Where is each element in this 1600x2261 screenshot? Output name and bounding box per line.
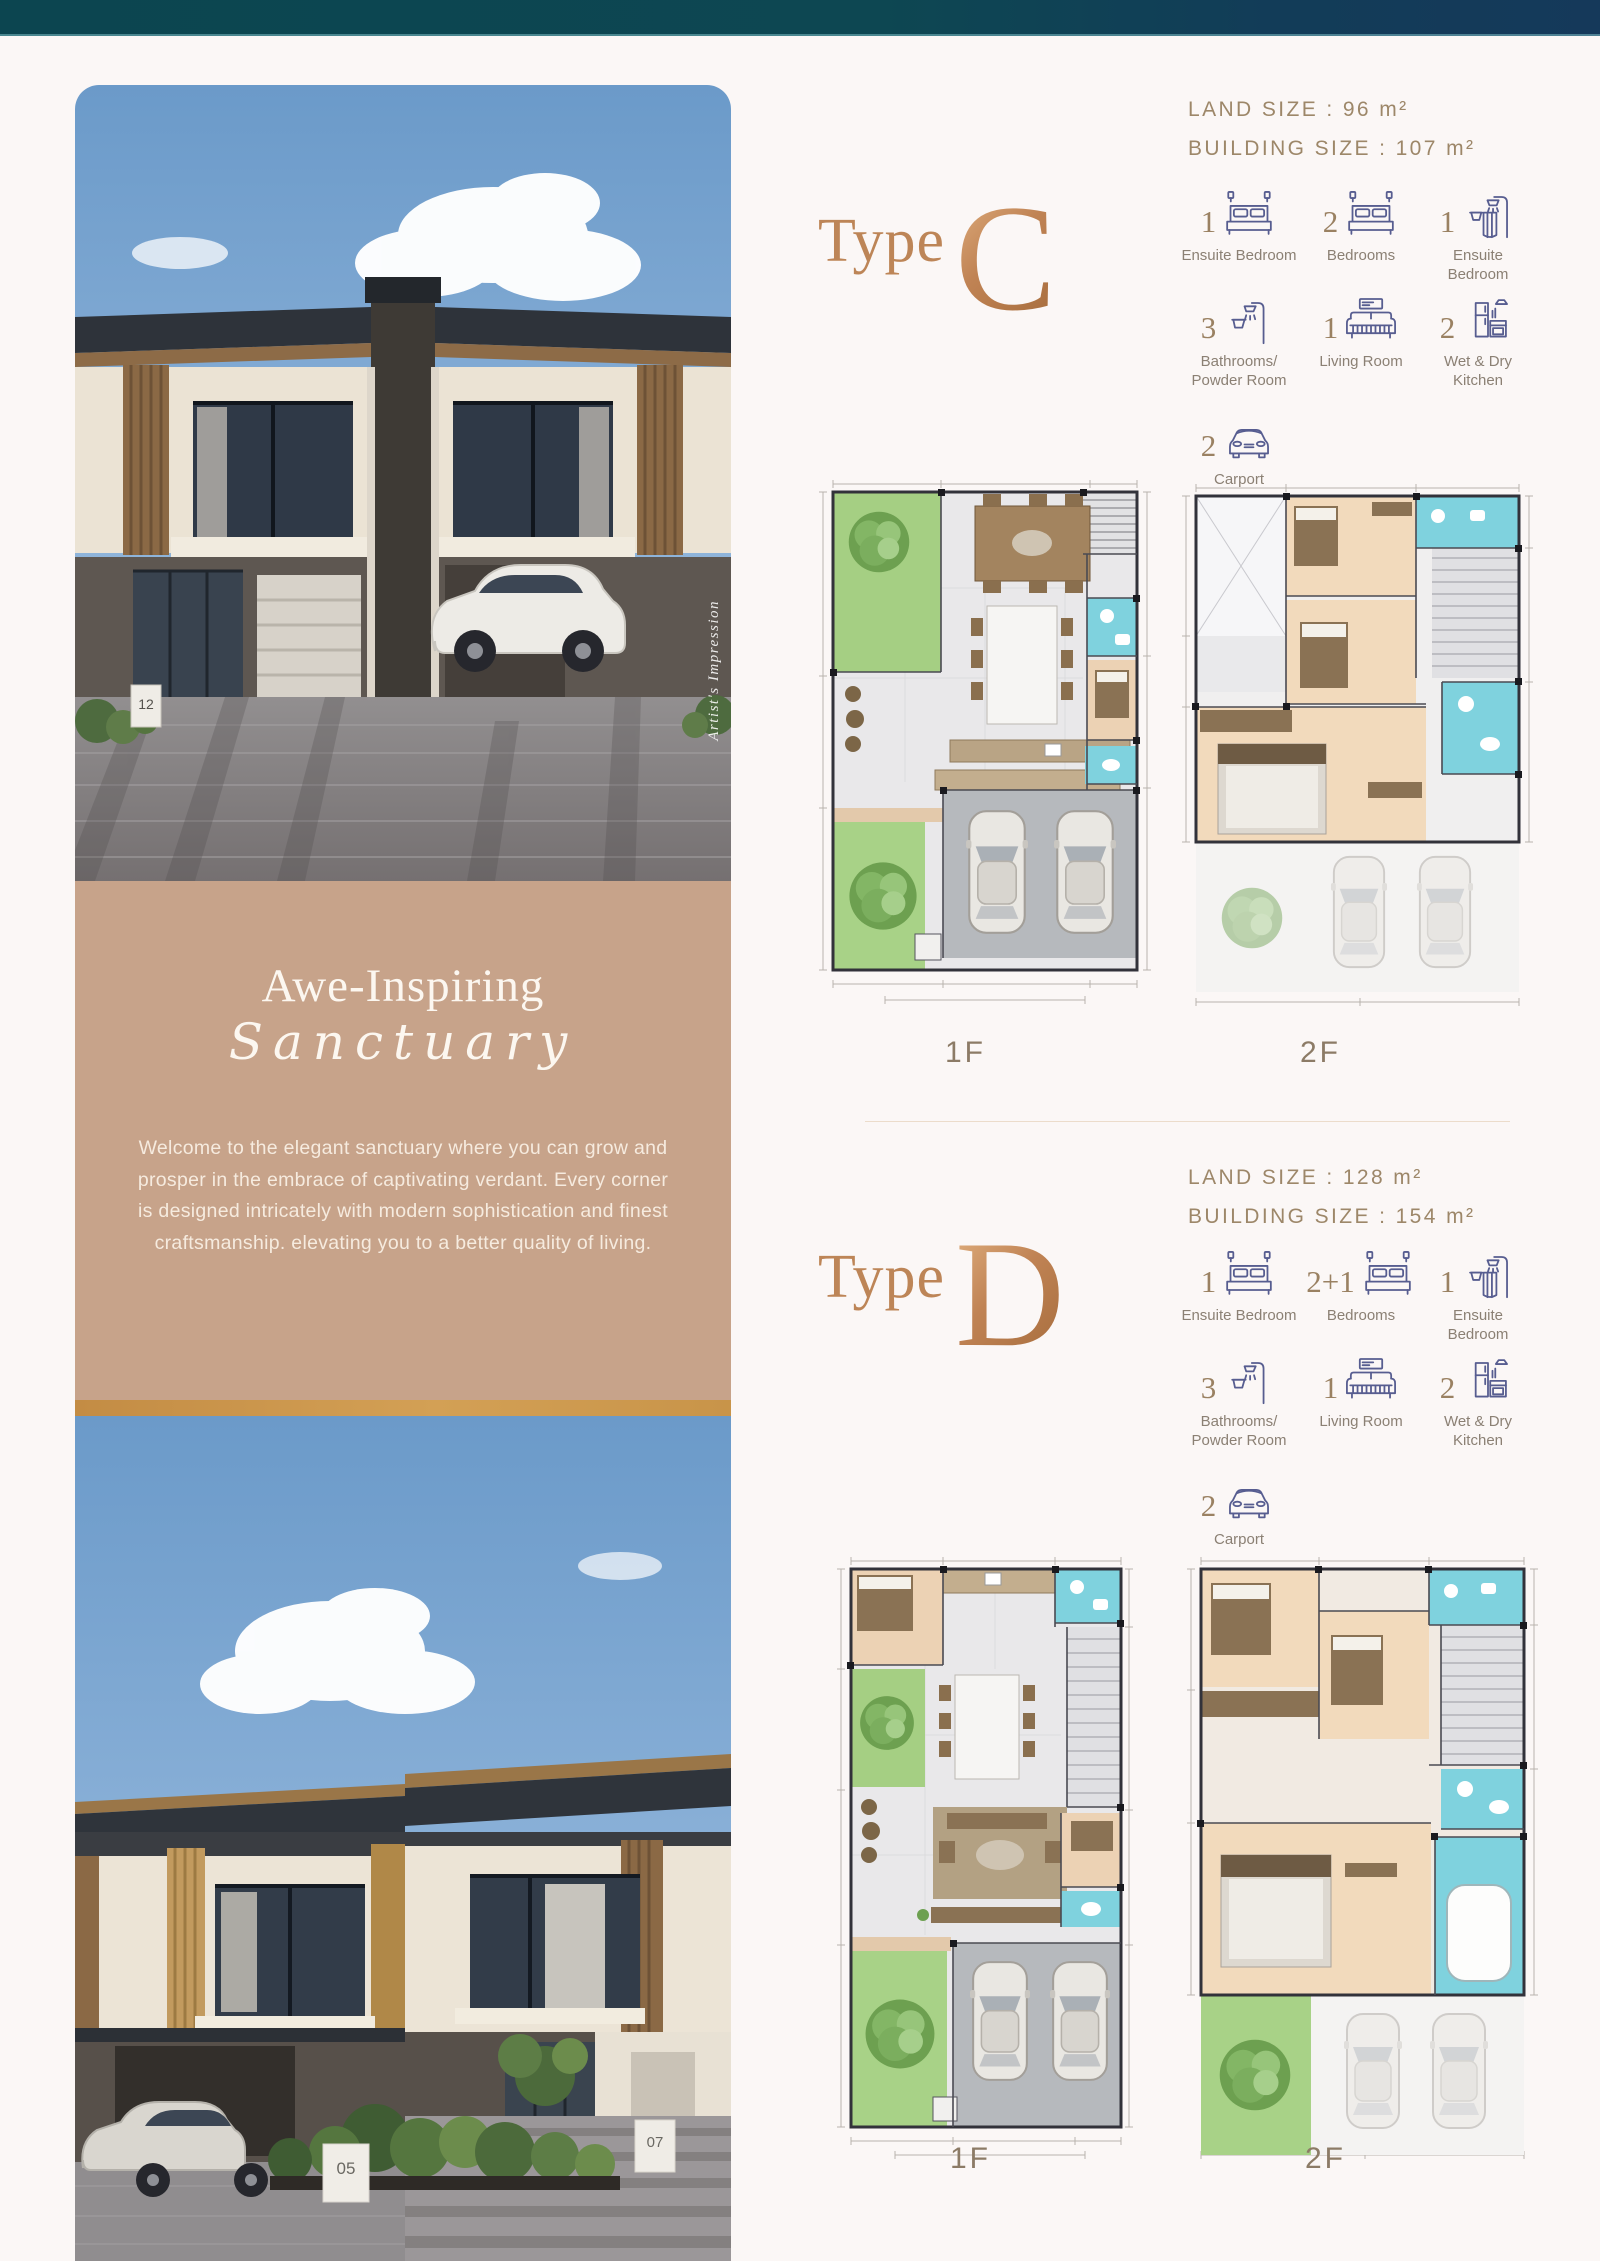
sofa-icon xyxy=(1343,294,1399,350)
type-d-floor-1f-label: 1F xyxy=(950,2142,991,2176)
left-column: 12 Artist's Impression Awe-Inspiring San… xyxy=(75,85,731,2261)
house-render-illustration: 12 xyxy=(75,85,731,881)
feature-label: Wet & Dry Kitchen xyxy=(1422,1413,1534,1451)
feature-living-room: 1 Living Room xyxy=(1300,294,1422,412)
feature-bedrooms: 2+1 Bedrooms xyxy=(1300,1248,1422,1354)
feature-count: 2 xyxy=(1440,1370,1456,1406)
feature-ensuite-bedroom: 1 Ensuite Bedroom xyxy=(1178,188,1300,294)
feature-label: Ensuite Bedroom xyxy=(1181,1307,1296,1326)
sofa-icon xyxy=(1343,1354,1399,1410)
feature-kitchen: 2 Wet & Dry Kitchen xyxy=(1422,294,1534,412)
house-render-illustration-2: 05 07 xyxy=(75,1416,731,2261)
panel-accent-strip xyxy=(75,1400,731,1416)
type-d-land-size: LAND SIZE : 128 m² xyxy=(1188,1166,1475,1190)
type-d-floor-2f-label: 2F xyxy=(1305,2142,1346,2176)
type-c-header: Type C xyxy=(818,182,1056,334)
feature-count: 2 xyxy=(1440,310,1456,346)
shower-icon xyxy=(1221,1354,1277,1410)
type-c-specs: LAND SIZE : 96 m² BUILDING SIZE : 107 m² xyxy=(1188,98,1475,176)
car-icon xyxy=(1221,412,1277,468)
feature-count: 2+1 xyxy=(1306,1264,1354,1300)
feature-label: Ensuite Bedroom xyxy=(1181,247,1296,266)
feature-bathrooms: 3 Bathrooms/ Powder Room xyxy=(1178,1354,1300,1472)
house-number-sign-07: 07 xyxy=(647,2134,664,2151)
shower-curtain-icon xyxy=(1460,188,1516,244)
floorplan-d-2f xyxy=(1185,1555,1540,2170)
feature-label: Bathrooms/ Powder Room xyxy=(1180,1413,1298,1451)
feature-kitchen: 2 Wet & Dry Kitchen xyxy=(1422,1354,1534,1472)
feature-ensuite-bedroom-2: 1 Ensuite Bedroom xyxy=(1422,1248,1534,1354)
feature-label: Ensuite Bedroom xyxy=(1422,1307,1534,1345)
feature-count: 1 xyxy=(1323,1370,1339,1406)
kitchen-icon xyxy=(1460,294,1516,350)
bed-icon xyxy=(1221,1248,1277,1304)
feature-count: 3 xyxy=(1201,310,1217,346)
shower-icon xyxy=(1221,294,1277,350)
feature-count: 3 xyxy=(1201,1370,1217,1406)
feature-count: 1 xyxy=(1440,204,1456,240)
feature-count: 1 xyxy=(1201,204,1217,240)
type-c-building-size: BUILDING SIZE : 107 m² xyxy=(1188,137,1475,161)
feature-label: Living Room xyxy=(1319,1413,1402,1432)
shower-curtain-icon xyxy=(1460,1248,1516,1304)
sanctuary-description: Welcome to the elegant sanctuary where y… xyxy=(133,1133,673,1259)
sanctuary-subtitle: Sanctuary xyxy=(75,1013,731,1071)
section-divider xyxy=(865,1121,1510,1122)
artists-impression-caption: Artist's Impression xyxy=(706,600,723,741)
feature-count: 2 xyxy=(1323,204,1339,240)
feature-bedrooms: 2 Bedrooms xyxy=(1300,188,1422,294)
feature-label: Wet & Dry Kitchen xyxy=(1422,353,1534,391)
house-number-sign-05: 05 xyxy=(337,2159,356,2178)
kitchen-icon xyxy=(1460,1354,1516,1410)
feature-label: Bathrooms/ Powder Room xyxy=(1180,353,1298,391)
top-accent-bar xyxy=(0,0,1600,36)
feature-count: 1 xyxy=(1323,310,1339,346)
feature-bathrooms: 3 Bathrooms/ Powder Room xyxy=(1178,294,1300,412)
type-c-floor-1f-label: 1F xyxy=(945,1036,986,1070)
feature-count: 2 xyxy=(1201,428,1217,464)
feature-living-room: 1 Living Room xyxy=(1300,1354,1422,1472)
feature-count: 2 xyxy=(1201,1488,1217,1524)
feature-ensuite-bedroom-2: 1 Ensuite Bedroom xyxy=(1422,188,1534,294)
floorplan-d-1f xyxy=(835,1555,1135,2180)
type-d-feature-grid: 1 Ensuite Bedroom 2+1 Bedrooms 1 Ensuite… xyxy=(1178,1248,1534,1558)
type-d-building-size: BUILDING SIZE : 154 m² xyxy=(1188,1205,1475,1229)
type-c-letter: C xyxy=(955,182,1056,334)
feature-label: Carport xyxy=(1214,1531,1264,1550)
house-number-sign: 12 xyxy=(138,696,154,712)
feature-ensuite-bedroom: 1 Ensuite Bedroom xyxy=(1178,1248,1300,1354)
type-d-word: Type xyxy=(818,1242,945,1313)
bed-icon xyxy=(1360,1248,1416,1304)
feature-label: Ensuite Bedroom xyxy=(1422,247,1534,285)
floorplan-c-1f xyxy=(815,478,1155,1033)
feature-label: Bedrooms xyxy=(1327,1307,1395,1326)
type-d-letter: D xyxy=(955,1218,1065,1370)
floorplan-c-2f xyxy=(1180,482,1535,1017)
feature-carport: 2 Carport xyxy=(1178,1472,1300,1558)
sanctuary-panel: Awe-Inspiring Sanctuary Welcome to the e… xyxy=(75,881,731,1400)
feature-label: Living Room xyxy=(1319,353,1402,372)
bed-icon xyxy=(1343,188,1399,244)
type-d-header: Type D xyxy=(818,1218,1065,1370)
brochure-page: 12 Artist's Impression Awe-Inspiring San… xyxy=(0,0,1600,2261)
exterior-photo-bottom: 05 07 xyxy=(75,1416,731,2261)
type-c-word: Type xyxy=(818,206,945,277)
type-d-specs: LAND SIZE : 128 m² BUILDING SIZE : 154 m… xyxy=(1188,1166,1475,1244)
type-c-feature-grid: 1 Ensuite Bedroom 2 Bedrooms 1 Ensuite B… xyxy=(1178,188,1534,498)
bed-icon xyxy=(1221,188,1277,244)
feature-count: 1 xyxy=(1440,1264,1456,1300)
exterior-photo-top: 12 Artist's Impression xyxy=(75,85,731,881)
car-icon xyxy=(1221,1472,1277,1528)
type-c-floor-2f-label: 2F xyxy=(1300,1036,1341,1070)
feature-count: 1 xyxy=(1201,1264,1217,1300)
type-c-land-size: LAND SIZE : 96 m² xyxy=(1188,98,1475,122)
sanctuary-title: Awe-Inspiring xyxy=(75,959,731,1013)
feature-label: Bedrooms xyxy=(1327,247,1395,266)
